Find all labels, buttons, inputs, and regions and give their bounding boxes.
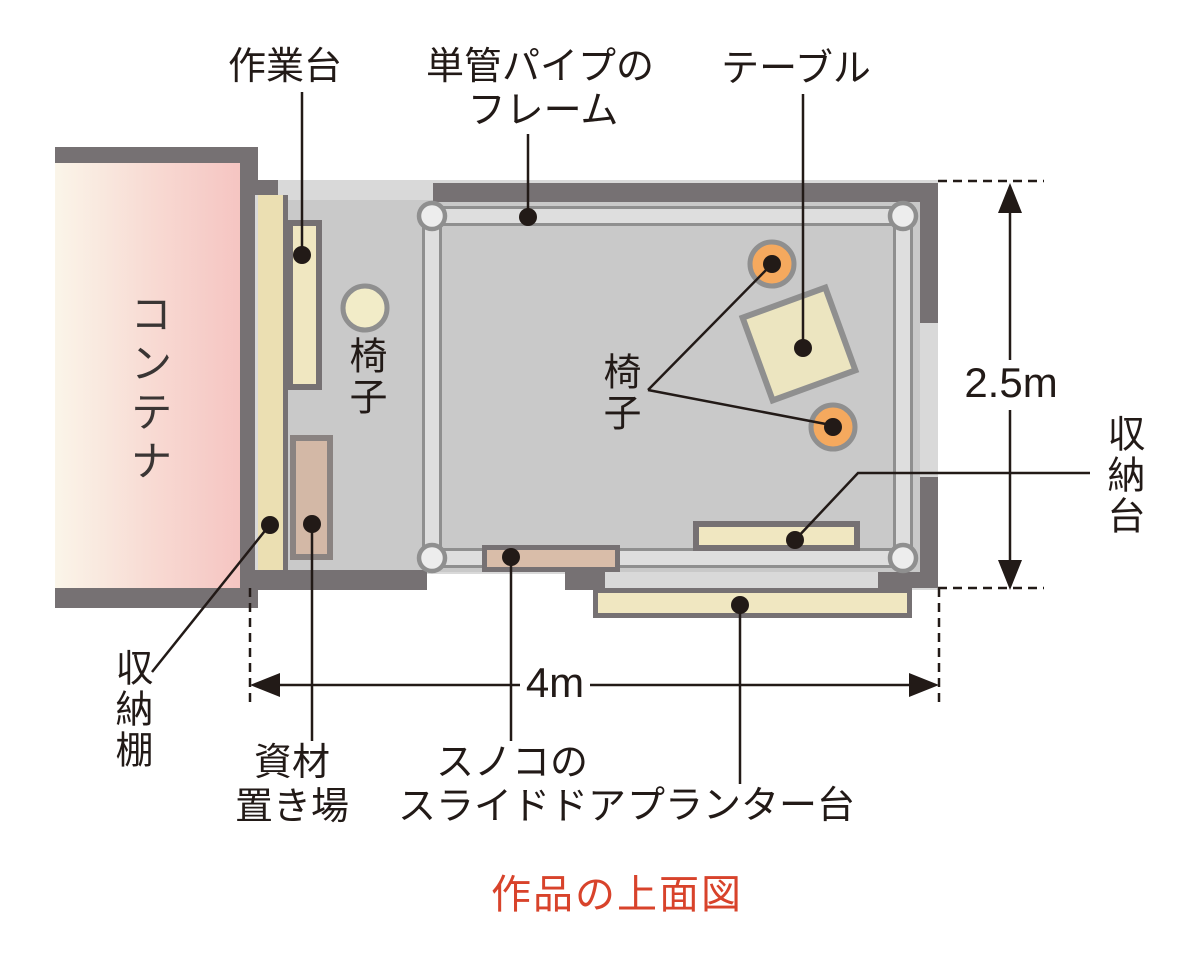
container-label: コンテナ — [127, 292, 169, 488]
storage-stand-label: 収納台 — [1101, 414, 1143, 537]
material-area-label-line1: 資材 — [235, 741, 349, 785]
chairs-pair-label: 椅子 — [597, 352, 639, 434]
sliding-door-label: スノコの スライドドア — [398, 741, 626, 829]
wall-right-lower — [920, 477, 938, 588]
planter-stand-label: プランター台 — [627, 785, 855, 827]
floor-plan-figure: 作業台 単管パイプの フレーム テーブル コンテナ 椅子 椅子 収納台 収納棚 … — [0, 0, 1200, 960]
door-opening — [427, 574, 565, 590]
material-area-label-line2: 置き場 — [235, 785, 349, 829]
wall-bottom-left — [255, 570, 427, 590]
pipe-joint-bottom-right — [890, 545, 916, 571]
chair-single — [343, 286, 387, 330]
pipe-joint-top-right — [890, 203, 916, 229]
wall-step-bottom-center — [565, 572, 605, 590]
planter-stand — [598, 593, 907, 613]
wall-top — [433, 183, 938, 202]
figure-title: 作品の上面図 — [491, 874, 743, 916]
container-wall-top — [55, 147, 258, 163]
material-area-label: 資材 置き場 — [235, 741, 349, 829]
height-dimension-label: 2.5m — [964, 362, 1057, 404]
wall-step-top-left — [255, 180, 278, 195]
table-label: テーブル — [721, 48, 871, 90]
sliding-door-label-line2: スライドドア — [398, 785, 626, 829]
pipe-joint-top-left — [419, 203, 445, 229]
wall-right-upper — [920, 183, 938, 323]
pipe-frame-label-line2: フレーム — [468, 90, 619, 132]
container-wall-bottom — [55, 588, 258, 608]
pipe-joint-bottom-left — [419, 545, 445, 571]
workbench-label: 作業台 — [228, 46, 342, 88]
wall-step-bottom-right — [878, 572, 920, 588]
chair-single-label: 椅子 — [343, 336, 385, 418]
pipe-frame-label-line1: 単管パイプの — [426, 46, 654, 88]
width-dimension-label: 4m — [526, 662, 584, 704]
sliding-door-label-line1: スノコの — [398, 741, 626, 785]
storage-shelf-label: 収納棚 — [109, 648, 151, 771]
storage-stand — [699, 527, 854, 545]
storage-shelf — [258, 195, 283, 570]
